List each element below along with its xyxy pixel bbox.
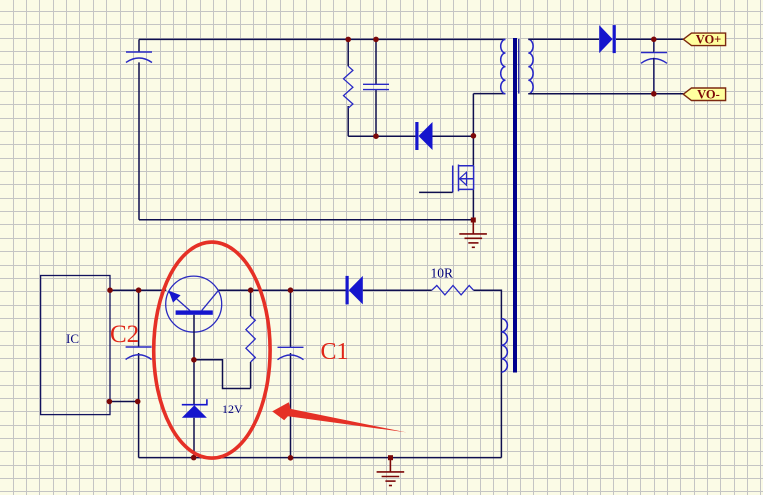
- svg-text:10R: 10R: [431, 266, 454, 281]
- svg-text:C2: C2: [110, 321, 139, 348]
- svg-text:C1: C1: [321, 339, 349, 365]
- svg-text:VO-: VO-: [697, 88, 720, 102]
- svg-text:IC: IC: [66, 331, 79, 346]
- svg-text:VO+: VO+: [696, 33, 722, 47]
- svg-text:12V: 12V: [222, 402, 243, 416]
